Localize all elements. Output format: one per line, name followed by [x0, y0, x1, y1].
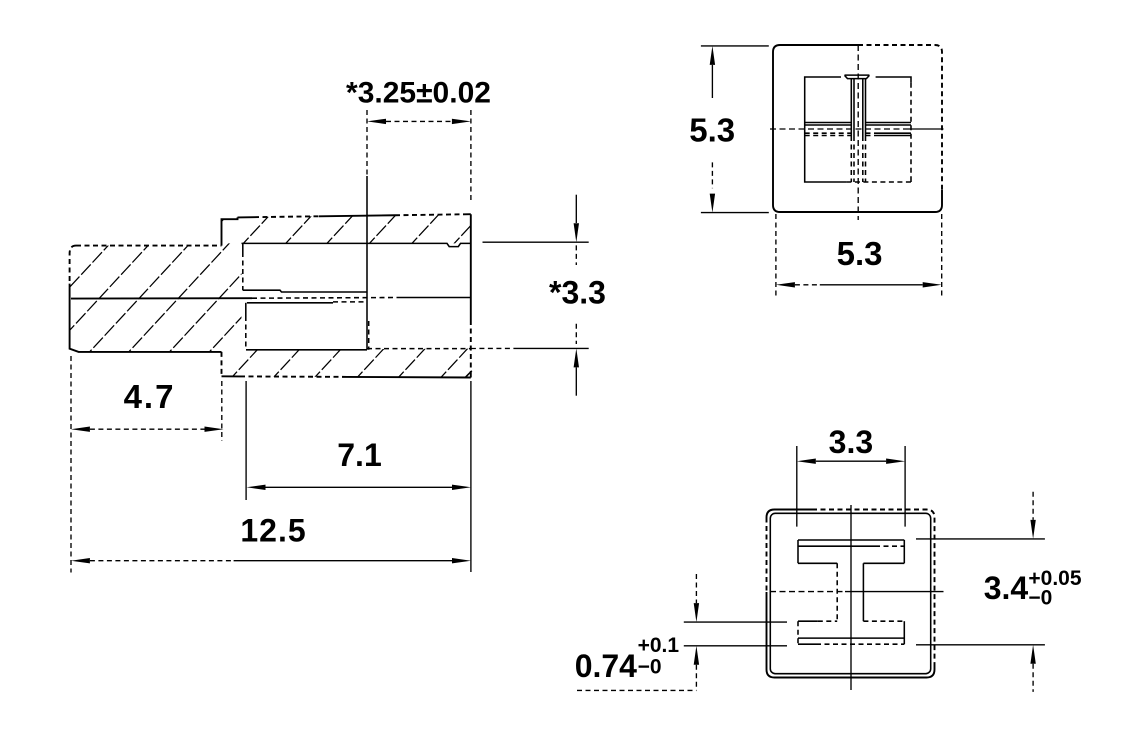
- svg-text:12.5: 12.5: [240, 513, 306, 549]
- svg-text:7.1: 7.1: [337, 437, 381, 473]
- svg-text:4.7: 4.7: [124, 378, 176, 415]
- svg-text:3.3: 3.3: [829, 424, 873, 460]
- svg-text:+0.1: +0.1: [638, 634, 680, 657]
- svg-text:5.3: 5.3: [689, 112, 735, 149]
- svg-text:*3.3: *3.3: [549, 275, 606, 311]
- svg-text:0.74: 0.74: [575, 648, 637, 684]
- svg-text:5.3: 5.3: [837, 235, 883, 272]
- svg-text:3.4: 3.4: [984, 570, 1029, 606]
- svg-text:−0: −0: [1028, 587, 1052, 610]
- svg-text:*3.25±0.02: *3.25±0.02: [346, 77, 491, 110]
- svg-text:−0: −0: [638, 656, 662, 679]
